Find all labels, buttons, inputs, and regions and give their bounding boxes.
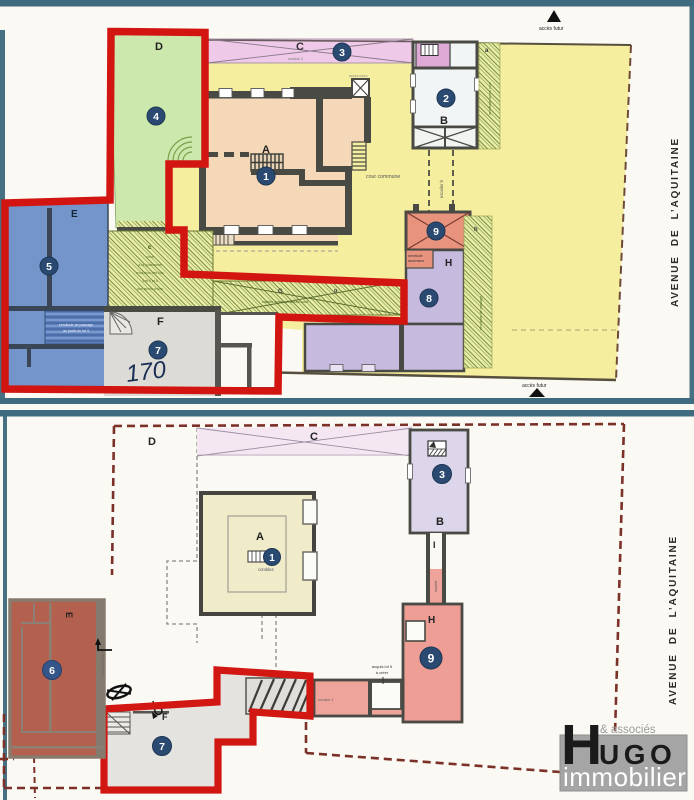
svg-text:servitude: servitude [408, 254, 423, 258]
svg-text:5: 5 [46, 261, 52, 273]
svg-text:6: 6 [49, 665, 55, 677]
svg-text:accès futur: accès futur [522, 383, 547, 389]
svg-text:acces toit du lot 3: acces toit du lot 3 [101, 651, 105, 676]
svg-text:couloir 1: couloir 1 [288, 56, 304, 61]
svg-text:G: G [278, 289, 283, 295]
svg-text:acquis lot 5: acquis lot 5 [372, 664, 393, 669]
svg-text:AVENUE DE L’AQUITAINE: AVENUE DE L’AQUITAINE [670, 137, 681, 307]
svg-text:4 et 5 et 6: 4 et 5 et 6 [142, 279, 158, 283]
svg-text:cour commune: cour commune [366, 174, 400, 180]
svg-text:B: B [436, 516, 444, 528]
svg-text:1: 1 [269, 553, 275, 564]
svg-text:I: I [433, 540, 436, 550]
svg-text:D: D [148, 436, 156, 448]
svg-text:g: g [334, 288, 337, 294]
svg-text:& associés: & associés [600, 724, 656, 736]
svg-text:D: D [155, 41, 163, 53]
svg-text:servitude de passage: servitude de passage [59, 323, 93, 327]
svg-text:3: 3 [439, 469, 445, 481]
svg-text:immobilier: immobilier [563, 762, 686, 792]
svg-text:zone: zone [146, 255, 154, 259]
svg-text:9: 9 [433, 226, 439, 238]
svg-text:E: E [64, 612, 74, 618]
svg-text:A: A [256, 531, 264, 543]
svg-text:acces mure: acces mure [349, 74, 368, 78]
svg-text:7: 7 [155, 345, 161, 357]
svg-text:aux acces prives: aux acces prives [137, 287, 163, 291]
svg-text:accès futur: accès futur [539, 26, 564, 32]
svg-text:2: 2 [443, 93, 449, 105]
svg-text:escalier: escalier [434, 579, 438, 592]
svg-text:servitude acces cour: servitude acces cour [488, 81, 492, 115]
svg-text:C: C [296, 41, 304, 53]
svg-text:170: 170 [124, 356, 168, 388]
svg-text:escalier 4: escalier 4 [318, 698, 333, 702]
svg-text:H: H [445, 258, 452, 269]
svg-text:F: F [162, 712, 168, 722]
svg-text:3: 3 [339, 47, 345, 59]
svg-text:A: A [262, 144, 270, 156]
svg-text:H: H [428, 615, 435, 626]
svg-text:couloir commun acces cour: couloir commun acces cour [262, 300, 309, 304]
svg-text:9: 9 [428, 652, 435, 666]
svg-text:7: 7 [159, 741, 165, 753]
svg-text:escalier b: escalier b [439, 179, 444, 198]
svg-text:8: 8 [426, 293, 432, 305]
svg-text:au profit du lot 3: au profit du lot 3 [63, 329, 89, 333]
svg-text:F: F [157, 316, 164, 328]
svg-text:exclusive des lots: exclusive des lots [136, 271, 164, 275]
svg-text:C: C [310, 431, 318, 443]
svg-text:ascenseur: ascenseur [408, 259, 425, 263]
svg-text:h: h [474, 227, 478, 233]
svg-text:à créer: à créer [376, 670, 389, 675]
svg-text:1: 1 [263, 171, 269, 183]
svg-text:B: B [440, 115, 448, 127]
svg-text:E: E [71, 209, 78, 220]
svg-text:AVENUE DE L’AQUITAINE: AVENUE DE L’AQUITAINE [668, 535, 679, 705]
svg-text:combles: combles [258, 567, 274, 572]
svg-text:servitude de passage: servitude de passage [479, 296, 483, 330]
svg-text:4: 4 [153, 111, 159, 123]
svg-text:a la jouissance: a la jouissance [138, 263, 161, 267]
